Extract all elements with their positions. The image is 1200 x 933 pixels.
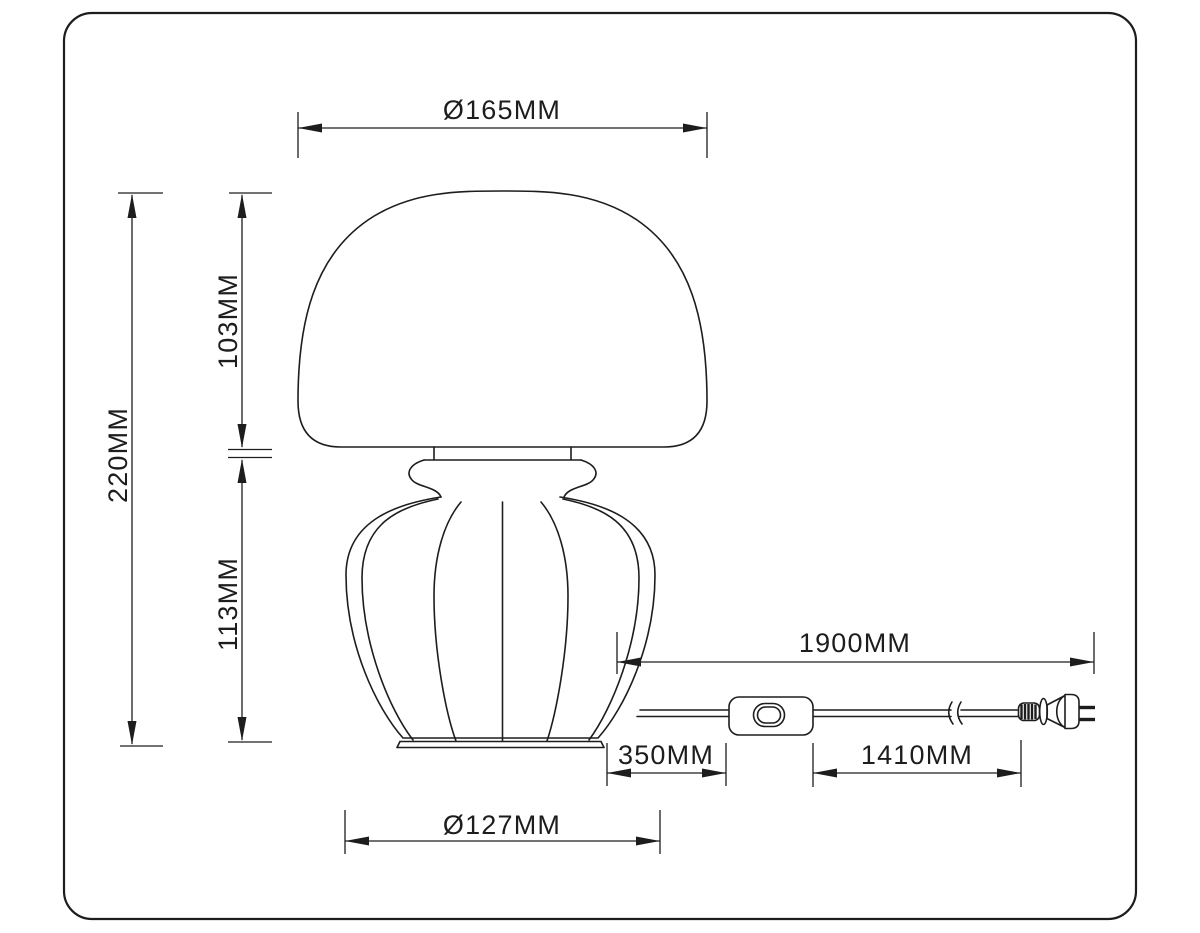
drawing-page: Ø165MM 220MM 103MM 113MM Ø127MM (0, 0, 1200, 933)
lamp-dimension-drawing: Ø165MM 220MM 103MM 113MM Ø127MM (0, 0, 1200, 933)
drawing-border (64, 13, 1136, 919)
dim-label-shade-height: 103MM (213, 273, 243, 369)
dim-label-cord-total: 1900MM (799, 628, 911, 658)
dim-label-total-height: 220MM (103, 407, 133, 503)
dim-label-cord-switch-to-plug: 1410MM (861, 740, 973, 770)
dim-label-shade-diameter: Ø165MM (443, 95, 561, 125)
plug-body (1065, 695, 1079, 729)
inline-switch (729, 697, 813, 735)
dim-label-base-diameter: Ø127MM (443, 810, 561, 840)
dim-label-cord-lamp-to-switch: 350MM (618, 740, 714, 770)
plug-flange (1040, 699, 1048, 725)
dim-label-base-height: 113MM (213, 557, 243, 651)
